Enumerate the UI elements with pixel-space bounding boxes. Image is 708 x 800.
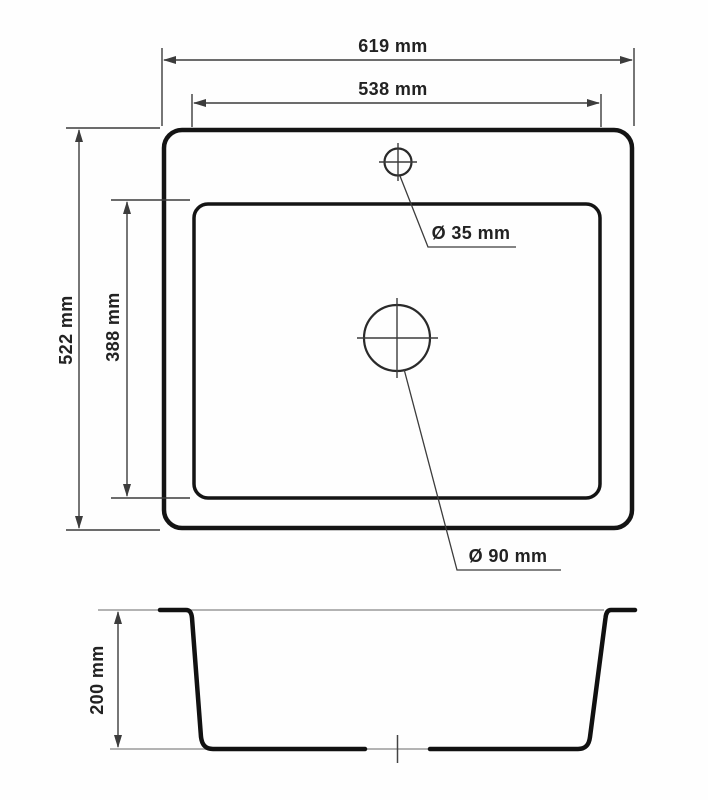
outer-width-label: 619 mm: [358, 37, 427, 55]
sink-technical-drawing: 619 mm 538 mm 522 mm 388 mm Ø 35 mm Ø 90…: [0, 0, 708, 800]
outer-height-label: 522 mm: [57, 295, 75, 364]
drain-hole-crosshair: [357, 298, 438, 378]
drain-hole-leader: [404, 369, 561, 570]
basin-profile-right: [430, 610, 635, 749]
arrow-left-icon: [163, 56, 176, 64]
inner-width-label: 538 mm: [358, 80, 427, 98]
section-view: [98, 610, 635, 763]
drain-hole-label: Ø 90 mm: [469, 547, 548, 565]
arrow-right-icon: [587, 99, 600, 107]
sink-outer-rim: [164, 130, 632, 528]
arrow-left-icon: [193, 99, 206, 107]
inner-height-label: 388 mm: [104, 292, 122, 361]
basin-profile-left: [160, 610, 365, 749]
faucet-hole-label: Ø 35 mm: [432, 224, 511, 242]
bowl-depth-label: 200 mm: [88, 645, 106, 714]
dimension-bowl-depth: [114, 611, 122, 748]
faucet-hole-crosshair: [379, 143, 417, 181]
top-view: [164, 130, 632, 528]
arrow-down-icon: [114, 735, 122, 748]
arrow-down-icon: [75, 516, 83, 529]
arrow-right-icon: [620, 56, 633, 64]
arrow-up-icon: [123, 201, 131, 214]
arrow-down-icon: [123, 484, 131, 497]
arrow-up-icon: [114, 611, 122, 624]
arrow-up-icon: [75, 129, 83, 142]
